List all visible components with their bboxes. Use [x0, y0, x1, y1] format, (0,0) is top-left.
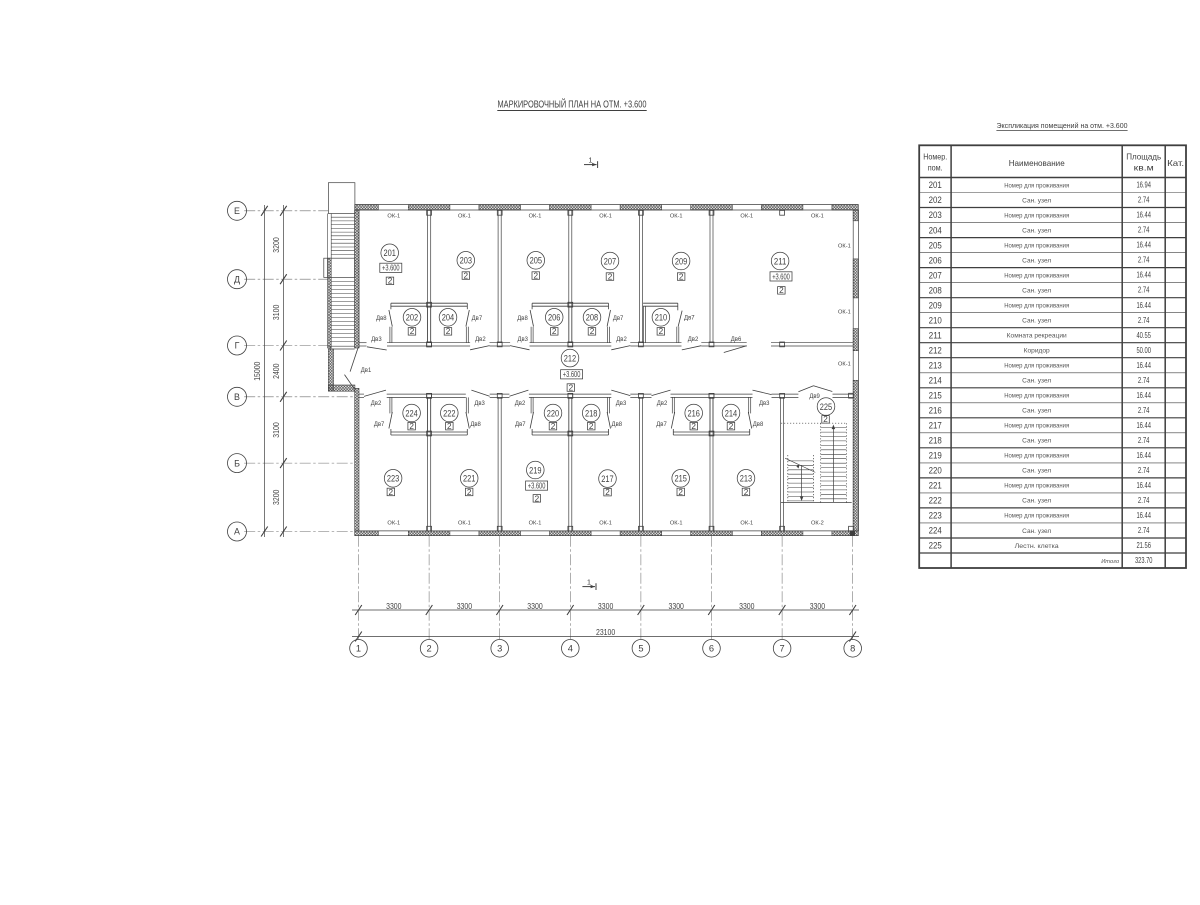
svg-text:2: 2 — [410, 327, 415, 336]
svg-text:ОК-1: ОК-1 — [599, 521, 612, 527]
svg-text:2400: 2400 — [271, 363, 281, 379]
svg-text:3200: 3200 — [271, 489, 281, 505]
svg-text:3: 3 — [497, 644, 502, 654]
svg-text:2: 2 — [729, 422, 734, 431]
svg-text:Номер для проживания: Номер для проживания — [1004, 212, 1069, 219]
svg-text:3300: 3300 — [810, 601, 826, 611]
svg-text:5: 5 — [638, 644, 643, 654]
svg-text:15000: 15000 — [252, 361, 262, 380]
svg-text:218: 218 — [585, 408, 597, 418]
svg-text:3100: 3100 — [271, 305, 281, 321]
svg-text:2: 2 — [569, 383, 574, 392]
svg-text:Дв2: Дв2 — [688, 336, 699, 343]
svg-text:216: 216 — [688, 408, 700, 418]
svg-text:219: 219 — [529, 465, 541, 475]
svg-text:кв.м: кв.м — [1134, 163, 1154, 173]
svg-text:215: 215 — [929, 391, 942, 401]
svg-text:Дв7: Дв7 — [374, 421, 385, 428]
svg-text:223: 223 — [929, 511, 942, 521]
svg-text:2.74: 2.74 — [1138, 286, 1150, 295]
svg-text:+3.600: +3.600 — [382, 264, 400, 273]
svg-text:3100: 3100 — [271, 422, 281, 438]
svg-text:Г: Г — [235, 341, 240, 351]
svg-text:16.44: 16.44 — [1136, 391, 1151, 400]
svg-text:207: 207 — [929, 270, 942, 280]
svg-text:210: 210 — [929, 315, 942, 325]
svg-text:16.94: 16.94 — [1136, 181, 1151, 190]
svg-text:8: 8 — [850, 644, 855, 654]
svg-text:213: 213 — [929, 360, 942, 370]
svg-text:204: 204 — [929, 225, 942, 235]
svg-text:225: 225 — [929, 541, 942, 551]
svg-text:Дв8: Дв8 — [376, 315, 387, 322]
svg-text:2: 2 — [744, 488, 749, 497]
svg-text:214: 214 — [725, 408, 737, 418]
svg-text:211: 211 — [929, 330, 942, 340]
svg-text:2: 2 — [590, 327, 595, 336]
svg-text:Сан. узел: Сан. узел — [1022, 378, 1051, 385]
svg-text:Дв3: Дв3 — [474, 400, 485, 407]
svg-text:225: 225 — [820, 402, 832, 412]
svg-text:2.74: 2.74 — [1138, 496, 1150, 505]
svg-text:ОК-1: ОК-1 — [458, 214, 471, 220]
svg-text:Коридор: Коридор — [1024, 348, 1050, 355]
svg-text:Дв8: Дв8 — [753, 421, 764, 428]
svg-text:2: 2 — [534, 271, 539, 280]
svg-text:222: 222 — [443, 408, 455, 418]
svg-text:2: 2 — [409, 422, 414, 431]
svg-text:214: 214 — [929, 376, 942, 386]
svg-text:А: А — [234, 527, 240, 537]
svg-text:+3.600: +3.600 — [563, 370, 581, 379]
svg-text:206: 206 — [548, 313, 560, 323]
svg-text:Сан. узел: Сан. узел — [1022, 528, 1051, 535]
svg-text:Дв2: Дв2 — [475, 336, 486, 343]
svg-text:204: 204 — [442, 313, 454, 323]
svg-text:3300: 3300 — [739, 601, 755, 611]
svg-text:Сан. узел: Сан. узел — [1022, 287, 1051, 294]
svg-text:2.74: 2.74 — [1138, 406, 1150, 415]
svg-text:2: 2 — [551, 422, 556, 431]
svg-text:6: 6 — [709, 644, 714, 654]
svg-text:21.56: 21.56 — [1136, 541, 1151, 550]
svg-text:206: 206 — [929, 255, 942, 265]
svg-text:Сан. узел: Сан. узел — [1022, 498, 1051, 505]
svg-text:2: 2 — [389, 488, 394, 497]
svg-text:ОК-1: ОК-1 — [599, 214, 612, 220]
svg-text:2: 2 — [605, 488, 610, 497]
svg-text:Дв1: Дв1 — [361, 367, 372, 374]
svg-text:2: 2 — [446, 327, 451, 336]
svg-text:220: 220 — [547, 408, 559, 418]
svg-text:ОК-1: ОК-1 — [838, 310, 851, 316]
svg-text:2.74: 2.74 — [1138, 376, 1150, 385]
svg-text:Дв6: Дв6 — [731, 336, 742, 343]
svg-text:16.44: 16.44 — [1136, 451, 1151, 460]
svg-text:Дв3: Дв3 — [616, 400, 627, 407]
svg-text:2: 2 — [447, 422, 452, 431]
svg-text:16.44: 16.44 — [1136, 271, 1151, 280]
svg-text:Дв3: Дв3 — [517, 336, 528, 343]
svg-text:2: 2 — [679, 272, 684, 281]
svg-text:3300: 3300 — [457, 601, 473, 611]
svg-text:4: 4 — [568, 644, 573, 654]
svg-text:ОК-1: ОК-1 — [670, 521, 683, 527]
svg-text:ОК-1: ОК-1 — [458, 521, 471, 527]
svg-text:ОК-1: ОК-1 — [740, 521, 753, 527]
svg-text:2.74: 2.74 — [1138, 466, 1150, 475]
svg-text:Дв8: Дв8 — [612, 421, 623, 428]
svg-text:Номер для проживания: Номер для проживания — [1004, 513, 1069, 520]
svg-text:16.44: 16.44 — [1136, 481, 1151, 490]
svg-text:Дв2: Дв2 — [616, 336, 627, 343]
svg-text:2: 2 — [779, 286, 784, 295]
svg-text:23100: 23100 — [596, 627, 615, 637]
svg-text:Сан. узел: Сан. узел — [1022, 227, 1051, 234]
svg-text:211: 211 — [774, 256, 786, 266]
svg-text:Кат.: Кат. — [1167, 158, 1184, 168]
svg-text:2: 2 — [691, 422, 696, 431]
svg-text:Дв7: Дв7 — [656, 421, 667, 428]
svg-text:Номер для проживания: Номер для проживания — [1004, 182, 1069, 189]
svg-text:201: 201 — [929, 180, 942, 190]
svg-text:ОК-1: ОК-1 — [529, 521, 542, 527]
svg-text:210: 210 — [655, 313, 667, 323]
svg-text:Д: Д — [234, 274, 240, 284]
svg-text:Дв8: Дв8 — [517, 315, 528, 322]
svg-text:209: 209 — [929, 300, 942, 310]
svg-text:Сан. узел: Сан. узел — [1022, 197, 1051, 204]
svg-text:219: 219 — [929, 451, 942, 461]
svg-text:218: 218 — [929, 436, 942, 446]
svg-text:323.70: 323.70 — [1135, 556, 1153, 565]
svg-text:ОК-1: ОК-1 — [529, 214, 542, 220]
svg-text:Экспликация помещений на отм.: Экспликация помещений на отм. +3.600 — [997, 121, 1128, 130]
svg-text:16.44: 16.44 — [1136, 361, 1151, 370]
svg-text:3200: 3200 — [271, 237, 281, 253]
svg-text:В: В — [234, 392, 240, 402]
svg-text:216: 216 — [929, 406, 942, 416]
svg-text:Номер для проживания: Номер для проживания — [1004, 272, 1069, 279]
svg-text:2: 2 — [464, 271, 469, 280]
svg-text:2: 2 — [589, 422, 594, 431]
svg-text:Номер для проживания: Номер для проживания — [1004, 393, 1069, 400]
svg-text:Номер.: Номер. — [923, 152, 947, 162]
svg-text:Сан. узел: Сан. узел — [1022, 468, 1051, 475]
svg-text:223: 223 — [387, 474, 399, 484]
svg-text:2: 2 — [535, 494, 540, 503]
svg-text:Итого: Итого — [1101, 559, 1120, 565]
svg-text:215: 215 — [675, 474, 687, 484]
svg-text:+3.600: +3.600 — [528, 482, 546, 491]
svg-text:ОК-1: ОК-1 — [387, 521, 400, 527]
svg-text:ОК-2: ОК-2 — [811, 521, 824, 527]
svg-text:202: 202 — [929, 195, 942, 205]
svg-text:201: 201 — [384, 248, 396, 258]
svg-text:208: 208 — [586, 313, 598, 323]
svg-text:212: 212 — [929, 345, 942, 355]
svg-text:16.44: 16.44 — [1136, 421, 1151, 430]
svg-text:+3.600: +3.600 — [772, 272, 790, 281]
svg-text:2: 2 — [427, 644, 432, 654]
svg-text:3300: 3300 — [386, 601, 402, 611]
svg-text:217: 217 — [929, 421, 942, 431]
svg-text:224: 224 — [405, 408, 417, 418]
svg-text:Площадь: Площадь — [1126, 152, 1161, 162]
svg-text:Дв8: Дв8 — [470, 421, 481, 428]
svg-text:7: 7 — [780, 644, 785, 654]
svg-text:221: 221 — [929, 481, 942, 491]
svg-text:Дв7: Дв7 — [472, 315, 483, 322]
svg-text:Е: Е — [234, 206, 240, 216]
svg-text:3300: 3300 — [669, 601, 685, 611]
svg-text:ОК-1: ОК-1 — [838, 362, 851, 368]
svg-text:205: 205 — [530, 256, 542, 266]
svg-text:224: 224 — [929, 526, 942, 536]
svg-text:16.44: 16.44 — [1136, 511, 1151, 520]
svg-text:ОК-1: ОК-1 — [670, 214, 683, 220]
svg-text:Лестн. клетка: Лестн. клетка — [1015, 543, 1059, 550]
svg-text:205: 205 — [929, 240, 942, 250]
svg-text:2.74: 2.74 — [1138, 196, 1150, 205]
svg-text:Номер для проживания: Номер для проживания — [1004, 483, 1069, 490]
svg-text:207: 207 — [604, 256, 616, 266]
svg-text:222: 222 — [929, 496, 942, 506]
svg-text:ОК-1: ОК-1 — [387, 214, 400, 220]
svg-text:Сан. узел: Сан. узел — [1022, 257, 1051, 264]
svg-text:2.74: 2.74 — [1138, 436, 1150, 445]
svg-text:Номер для проживания: Номер для проживания — [1004, 423, 1069, 430]
svg-text:ОК-1: ОК-1 — [811, 214, 824, 220]
svg-text:50.00: 50.00 — [1136, 346, 1151, 355]
svg-text:Сан. узел: Сан. узел — [1022, 318, 1051, 325]
svg-text:Номер для проживания: Номер для проживания — [1004, 453, 1069, 460]
svg-text:2: 2 — [388, 277, 393, 286]
svg-text:16.44: 16.44 — [1136, 211, 1151, 220]
svg-text:Номер для проживания: Номер для проживания — [1004, 363, 1069, 370]
svg-text:2.74: 2.74 — [1138, 526, 1150, 535]
svg-text:Дв7: Дв7 — [613, 315, 624, 322]
svg-text:40.55: 40.55 — [1136, 331, 1151, 340]
svg-text:Номер для проживания: Номер для проживания — [1004, 242, 1069, 249]
svg-text:Дв2: Дв2 — [515, 400, 526, 407]
svg-text:Дв7: Дв7 — [684, 315, 695, 322]
svg-text:Комната рекреации: Комната рекреации — [1007, 333, 1067, 340]
svg-text:Дв2: Дв2 — [371, 400, 382, 407]
svg-text:Дв7: Дв7 — [515, 421, 526, 428]
svg-text:221: 221 — [463, 474, 475, 484]
svg-text:203: 203 — [929, 210, 942, 220]
svg-text:208: 208 — [929, 285, 942, 295]
svg-text:2.74: 2.74 — [1138, 316, 1150, 325]
svg-text:212: 212 — [564, 353, 576, 363]
svg-text:Номер для проживания: Номер для проживания — [1004, 303, 1069, 310]
svg-text:2: 2 — [608, 272, 613, 281]
svg-text:2: 2 — [467, 488, 472, 497]
svg-text:2: 2 — [823, 415, 828, 424]
svg-text:16.44: 16.44 — [1136, 241, 1151, 250]
svg-text:3300: 3300 — [598, 601, 614, 611]
svg-text:209: 209 — [675, 256, 687, 266]
svg-text:Дв2: Дв2 — [657, 400, 668, 407]
svg-text:203: 203 — [460, 256, 472, 266]
svg-text:2.74: 2.74 — [1138, 256, 1150, 265]
svg-text:2: 2 — [678, 488, 683, 497]
svg-text:1: 1 — [587, 577, 591, 586]
svg-text:ОК-1: ОК-1 — [740, 214, 753, 220]
svg-text:213: 213 — [740, 474, 752, 484]
svg-text:Сан. узел: Сан. узел — [1022, 438, 1051, 445]
svg-text:202: 202 — [406, 313, 418, 323]
svg-text:16.44: 16.44 — [1136, 301, 1151, 310]
svg-text:217: 217 — [601, 474, 613, 484]
svg-text:2: 2 — [659, 327, 664, 336]
svg-text:Б: Б — [234, 458, 240, 468]
svg-text:Наименование: Наименование — [1009, 158, 1065, 168]
svg-text:МАРКИРОВОЧНЫЙ ПЛАН НА ОТМ. +3.: МАРКИРОВОЧНЫЙ ПЛАН НА ОТМ. +3.600 — [498, 98, 647, 111]
svg-text:ОК-1: ОК-1 — [838, 244, 851, 250]
svg-text:1: 1 — [588, 156, 592, 165]
svg-text:2.74: 2.74 — [1138, 226, 1150, 235]
svg-text:Дв9: Дв9 — [809, 393, 820, 400]
svg-text:220: 220 — [929, 466, 942, 476]
svg-text:1: 1 — [356, 644, 361, 654]
svg-text:3300: 3300 — [527, 601, 543, 611]
svg-text:Сан. узел: Сан. узел — [1022, 408, 1051, 415]
svg-text:Дв3: Дв3 — [759, 400, 770, 407]
svg-text:пом.: пом. — [928, 163, 943, 173]
svg-text:Дв3: Дв3 — [371, 336, 382, 343]
svg-text:2: 2 — [552, 327, 557, 336]
